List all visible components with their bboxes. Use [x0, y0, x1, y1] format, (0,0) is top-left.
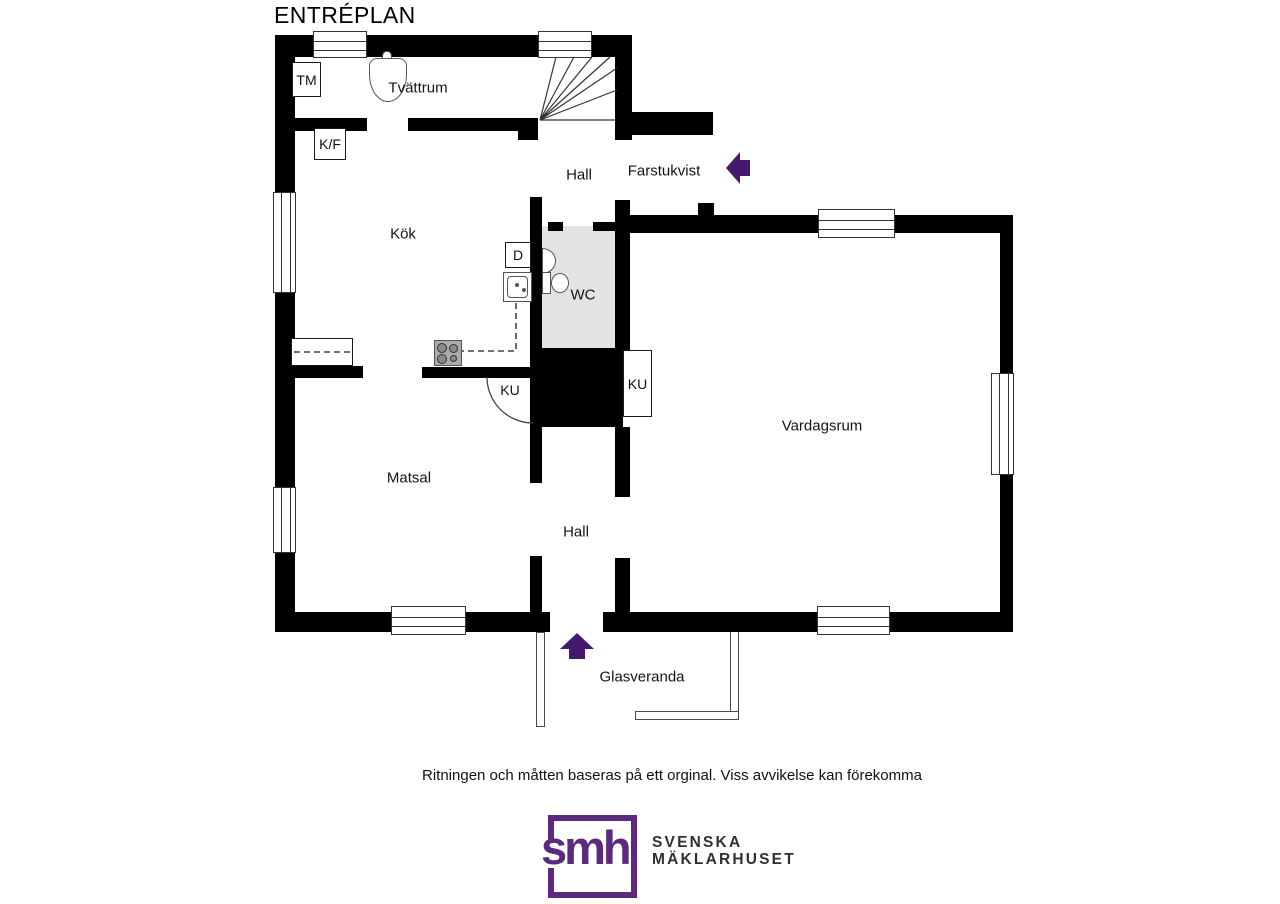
- room-label-matsal: Matsal: [387, 470, 431, 487]
- window-vardagsrum-bottom: [817, 606, 890, 635]
- fridge-freezer-box: K/F: [314, 128, 346, 160]
- tiled-stove-label: KU: [628, 376, 647, 392]
- tiled-stove-box: KU: [623, 350, 652, 417]
- wall-farstukvist-stub: [698, 203, 714, 217]
- chimney-block: [530, 348, 623, 427]
- window-glass: [313, 41, 367, 51]
- stove-burner: [450, 355, 457, 362]
- room-label-wc: WC: [571, 287, 596, 304]
- wall-stair-right: [615, 35, 632, 140]
- wall-tvattrum-bottom-b: [408, 118, 520, 131]
- window-vardagsrum-right: [991, 373, 1014, 475]
- wall-kok-matsal-left: [275, 366, 363, 378]
- window-matsal-left: [273, 487, 296, 553]
- room-label-farstukvist: Farstukvist: [628, 163, 701, 180]
- room-label-glasveranda: Glasveranda: [599, 669, 684, 686]
- stove-burner: [437, 354, 447, 364]
- room-label-tvattrum: Tvättrum: [388, 80, 447, 97]
- wall-bottom-right: [603, 612, 1013, 632]
- logo-name-line1: SVENSKA: [652, 834, 796, 851]
- dishwasher-box: D: [505, 242, 531, 268]
- window-glass: [817, 617, 890, 627]
- washing-machine-label: TM: [296, 72, 316, 88]
- window-tvattrum-top: [313, 31, 367, 58]
- wall-farstukvist-top: [632, 112, 713, 135]
- fixture-label-ku-left: KU: [500, 382, 519, 398]
- room-label-hall-upper: Hall: [566, 167, 592, 184]
- wall-hall-stub-bottom-right: [615, 558, 630, 614]
- wall-wc-top-a: [548, 222, 563, 231]
- entry-arrow-up-tail: [569, 649, 585, 659]
- window-glass: [538, 41, 592, 51]
- entry-arrow-left-icon: [726, 152, 740, 184]
- glasveranda-wall-left: [536, 632, 545, 727]
- window-glass: [999, 373, 1009, 475]
- kitchen-counter-left: [291, 338, 353, 366]
- window-glass: [391, 617, 466, 627]
- toilet-bowl: [551, 273, 569, 293]
- page-title: ENTRÉPLAN: [274, 2, 416, 29]
- wall-vardagsrum-top: [620, 215, 1013, 233]
- wall-kok-matsal-right: [422, 367, 533, 378]
- dishwasher-label: D: [513, 247, 523, 263]
- stove-burner: [437, 343, 447, 353]
- wall-hall-stub-top-right: [615, 427, 630, 497]
- wall-hall-stub-bottom-left: [530, 556, 542, 614]
- window-glass: [281, 487, 291, 553]
- wall-tvattrum-bottom-cap: [518, 118, 538, 140]
- room-label-kok: Kök: [390, 226, 416, 243]
- washing-machine-box: TM: [292, 62, 321, 97]
- window-glass: [281, 192, 291, 293]
- stove: [434, 340, 462, 366]
- fridge-freezer-label: K/F: [319, 136, 341, 152]
- toilet-tank: [542, 272, 551, 294]
- glasveranda-wall-bottom: [635, 711, 739, 720]
- entry-arrow-left-tail: [740, 160, 750, 176]
- window-matsal-bottom: [391, 606, 466, 635]
- window-stair-top: [538, 31, 592, 58]
- logo-name-line2: MÄKLARHUSET: [652, 851, 796, 868]
- kitchen-sink-basin: [507, 276, 528, 298]
- kitchen-sink-knob: [522, 288, 526, 292]
- logo-company-name: SVENSKA MÄKLARHUSET: [652, 834, 796, 868]
- kitchen-sink-knob: [515, 283, 519, 287]
- entry-arrow-up-icon: [560, 633, 594, 649]
- disclaimer-text: Ritningen och måtten baseras på ett orgi…: [272, 767, 1072, 784]
- room-label-vardagsrum: Vardagsrum: [782, 418, 863, 435]
- glasveranda-wall-right: [730, 630, 739, 718]
- window-kok-left: [273, 192, 296, 293]
- stove-burner: [449, 344, 458, 353]
- kitchen-sink: [503, 272, 532, 302]
- logo-monogram: smh: [541, 824, 629, 871]
- floor-plan-page: ENTRÉPLAN TM K/F D KU: [0, 0, 1280, 904]
- window-vardagsrum-top: [818, 209, 895, 238]
- staircase-lines: [540, 57, 617, 120]
- wall-hall-stub-top-left: [530, 427, 542, 483]
- window-glass: [818, 220, 895, 230]
- room-label-hall-lower: Hall: [563, 524, 589, 541]
